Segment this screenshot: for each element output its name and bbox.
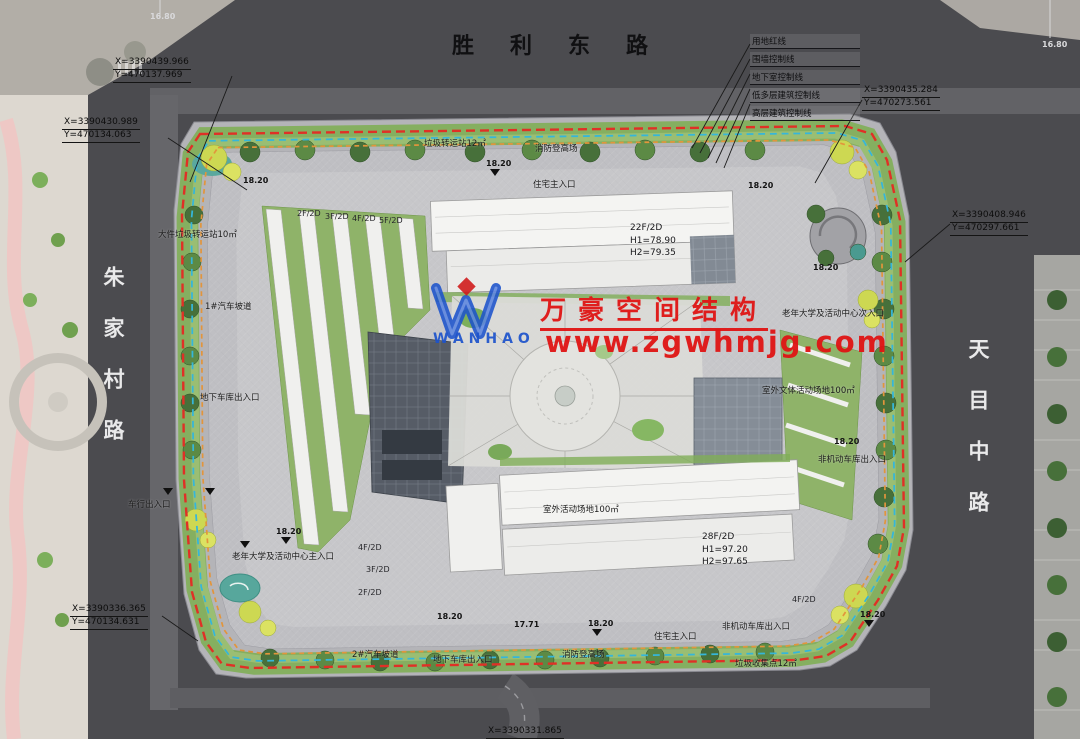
label-car-ramp-1: 1#汽车坡道 <box>205 302 252 312</box>
label-garage-entrance-west: 地下车库出入口 <box>200 393 260 403</box>
elevation-18-20-g: 18.20 <box>860 610 885 619</box>
legend-land-red-line: 用地红线 <box>750 34 860 49</box>
road-name-zhujiacun: 朱家村路 <box>98 266 128 470</box>
elevation-arrow <box>281 537 291 544</box>
building-22f-label: 22F/2D H1=78.90 H2=79.35 <box>630 222 676 260</box>
elevation-18-20-d: 18.20 <box>813 263 838 272</box>
label-residential-main-entrance-south: 住宅主入口 <box>654 632 697 642</box>
elevation-arrow <box>490 169 500 176</box>
building-22f <box>430 191 735 293</box>
elevation-18-20-i: 18.20 <box>437 612 462 621</box>
control-line-legend: 用地红线 围墙控制线 地下室控制线 低多层建筑控制线 高层建筑控制线 <box>750 34 860 121</box>
legend-wall-control-line: 围墙控制线 <box>750 52 860 67</box>
legend-lowrise-control-line: 低多层建筑控制线 <box>750 88 860 103</box>
label-senior-center-main-entrance: 老年大学及活动中心主入口 <box>232 552 334 562</box>
label-waste-transfer-station: 垃圾转运站12㎡ <box>424 139 486 149</box>
legend-basement-control-line: 地下室控制线 <box>750 70 860 85</box>
elevation-arrow <box>205 488 215 495</box>
floor-label-2f-south: 2F/2D <box>358 588 382 597</box>
north-sidewalk <box>150 88 1080 114</box>
floor-label-2f-west: 2F/2D <box>297 209 321 218</box>
east-sidewalk <box>1034 255 1080 739</box>
coord-topleft-inner: X=3390430.989Y=470134.063 <box>62 117 140 143</box>
coord-topleft-outer: X=3390439.966Y=470137.969 <box>113 57 191 83</box>
elevation-16-80-northwest: 16.80 <box>150 12 175 21</box>
elevation-17-71: 17.71 <box>514 620 539 629</box>
floor-label-5f-west: 5F/2D <box>379 216 403 225</box>
floor-label-3f-west: 3F/2D <box>325 212 349 221</box>
label-car-ramp-2: 2#汽车坡道 <box>352 650 399 660</box>
elevation-18-20-a: 18.20 <box>243 176 268 185</box>
south-sidewalk <box>170 688 930 708</box>
elevation-18-20-h: 18.20 <box>834 437 859 446</box>
label-fire-ladder-area-south: 消防登高场 <box>562 650 605 660</box>
coord-east: X=3390408.946Y=470297.661 <box>950 210 1028 236</box>
road-name-shengli-east: 胜利东路 <box>452 28 684 60</box>
road-name-tianmu-middle: 天目中路 <box>963 338 993 542</box>
label-vehicle-entrance-west: 车行出入口 <box>128 500 171 510</box>
elevation-arrow <box>592 629 602 636</box>
label-bike-garage-entrance-east: 非机动车库出入口 <box>818 455 886 465</box>
pond-southwest <box>220 574 260 602</box>
label-outdoor-sports-area: 室外文体活动场地100㎡ <box>762 386 855 396</box>
label-residential-main-entrance-north: 住宅主入口 <box>533 180 576 190</box>
floor-label-4f-west: 4F/2D <box>352 214 376 223</box>
coord-topright: X=3390435.284Y=470273.561 <box>862 85 940 111</box>
building-28f-label: 28F/2D H1=97.20 H2=97.65 <box>702 531 748 569</box>
legend-highrise-control-line: 高层建筑控制线 <box>750 106 860 121</box>
label-bulky-waste-station: 大件垃圾转运站10㎡ <box>158 230 237 240</box>
watermark-website: www.zgwhmjg.com <box>545 325 889 359</box>
floor-label-4f-south: 4F/2D <box>358 543 382 552</box>
coord-bottomleft: X=3390336.365Y=470134.631 <box>70 604 148 630</box>
elevation-18-20-b: 18.20 <box>486 159 511 168</box>
elevation-arrow <box>240 541 250 548</box>
site-plan-canvas: 胜利东路 朱家村路 天目中路 用地红线 围墙控制线 地下室控制线 低多层建筑控制… <box>0 0 1080 739</box>
label-bike-garage-entrance-south: 非机动车库出入口 <box>722 622 790 632</box>
coord-bottom: X=3390331.865 <box>486 726 564 739</box>
elevation-arrow <box>163 488 173 495</box>
label-fire-ladder-area-north: 消防登高场 <box>535 144 578 154</box>
elevation-arrow <box>864 620 874 627</box>
elevation-18-20-f: 18.20 <box>588 619 613 628</box>
elevation-16-80-northeast: 16.80 <box>1042 40 1067 49</box>
label-garage-entrance-south: 地下车库出入口 <box>433 655 493 665</box>
watermark-logo-text: WANHAO <box>433 331 535 347</box>
floor-label-3f-south: 3F/2D <box>366 565 390 574</box>
label-waste-collection-point: 垃圾收集点12㎡ <box>735 659 797 669</box>
label-senior-center-secondary-entrance: 老年大学及活动中心次入口 <box>782 309 884 319</box>
elevation-18-20-c: 18.20 <box>748 181 773 190</box>
label-outdoor-activity-area: 室外活动场地100㎡ <box>543 505 619 515</box>
floor-label-4f-east: 4F/2D <box>792 595 816 604</box>
elevation-18-20-e: 18.20 <box>276 527 301 536</box>
